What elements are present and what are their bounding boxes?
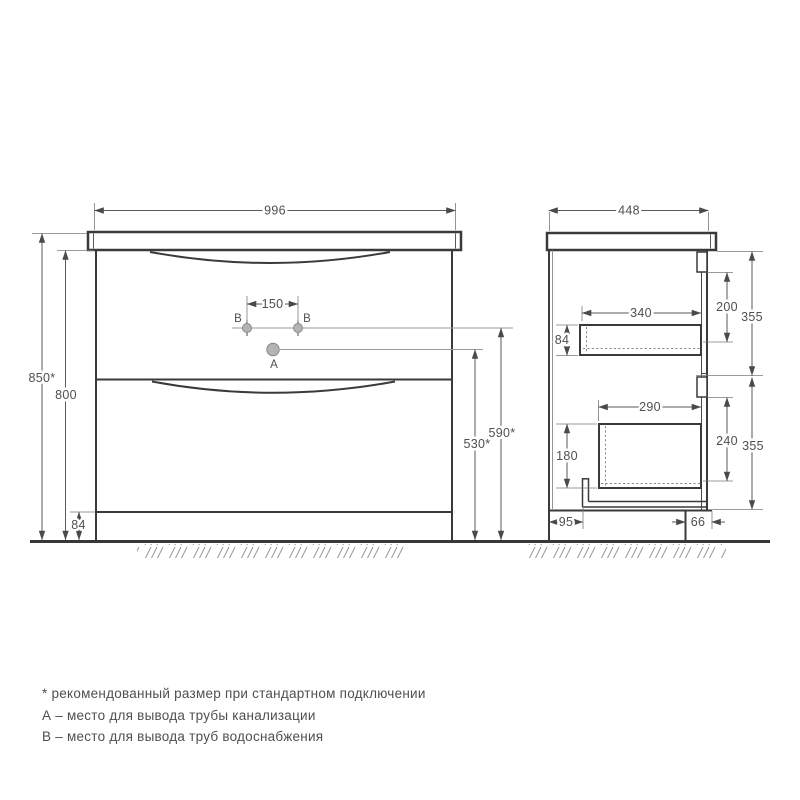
dim-front-width: 996 [95,203,456,230]
dim-total-height: 850* [29,234,87,541]
dim-plinth-height: 84 [70,512,95,540]
dim-448-label: 448 [618,204,640,218]
dim-200-label: 200 [716,300,738,314]
side-bottom-drawer-box [599,424,701,488]
dim-supply-height: 590* [489,328,516,540]
side-top-drawer-box [580,325,701,355]
dim-cabinet-height: 800 [55,251,94,541]
floor-hatching-left [137,544,408,558]
dim-holes-spacing: 150 [247,296,298,322]
dim-240-label: 240 [716,434,738,448]
front-countertop [88,232,461,250]
dim-530-label: 530* [464,437,491,451]
dim-150-label: 150 [262,297,284,311]
dim-depth: 448 [549,204,709,232]
dim-340-label: 340 [630,306,652,320]
side-bottom-handle-notch [697,377,707,397]
point-a-label: А [270,359,278,371]
note-recommended-size: * рекомендованный размер при стандартном… [42,683,426,705]
dim-850-label: 850* [29,371,56,385]
front-bottom-drawer-handle-curve [152,382,395,393]
side-top-handle-notch [697,252,707,272]
dim-95-label: 95 [559,515,574,529]
dim-top-clearance: 200 [703,273,738,343]
dim-84-side-label: 84 [555,333,570,347]
point-b-left-label: В [234,313,242,325]
dim-top-drawer-depth: 340 [582,306,701,321]
supply-point-left [243,324,252,333]
vanity-dimension-drawing: В В А 150 996 850* 800 [0,0,800,800]
dim-bottom-drawer-height: 180 [556,424,597,488]
side-countertop [547,233,716,250]
technical-drawing-page: В В А 150 996 850* 800 [0,0,800,800]
dim-800-label: 800 [55,388,77,402]
floor-ground-line [30,542,770,559]
dim-290-label: 290 [639,400,661,414]
note-supply-location: В – место для вывода труб водоснабжения [42,726,426,748]
dim-996-label: 996 [264,204,286,218]
dim-84-front-label: 84 [71,518,86,532]
pipe-markers: В В А [232,313,513,371]
dim-bottom-clearance: 240 [703,398,738,482]
note-drain-location: А – место для вывода трубы канализации [42,705,426,727]
front-top-drawer-handle-curve [150,252,390,263]
dim-top-drawer-height: 84 [555,325,578,356]
dim-toe-kick: 66 [672,511,725,529]
dim-590-label: 590* [489,426,516,440]
dim-bottom-drawer-depth: 290 [599,400,702,421]
dim-355-bottom-label: 355 [742,439,764,453]
front-cabinet-body [96,250,452,541]
supply-point-right [294,324,303,333]
dim-drain-height: 530* [464,350,491,541]
dim-355-top-label: 355 [741,310,763,324]
legend-notes: * рекомендованный размер при стандартном… [42,683,426,748]
side-view: 448 340 84 200 355 [547,204,764,541]
floor-hatching-right [524,544,726,558]
point-b-right-label: В [303,313,311,325]
dim-180-label: 180 [556,449,578,463]
side-cabinet-section [548,250,712,541]
drain-point [267,343,279,355]
front-view: В В А 150 996 850* 800 [29,203,516,541]
dim-66-label: 66 [691,515,706,529]
